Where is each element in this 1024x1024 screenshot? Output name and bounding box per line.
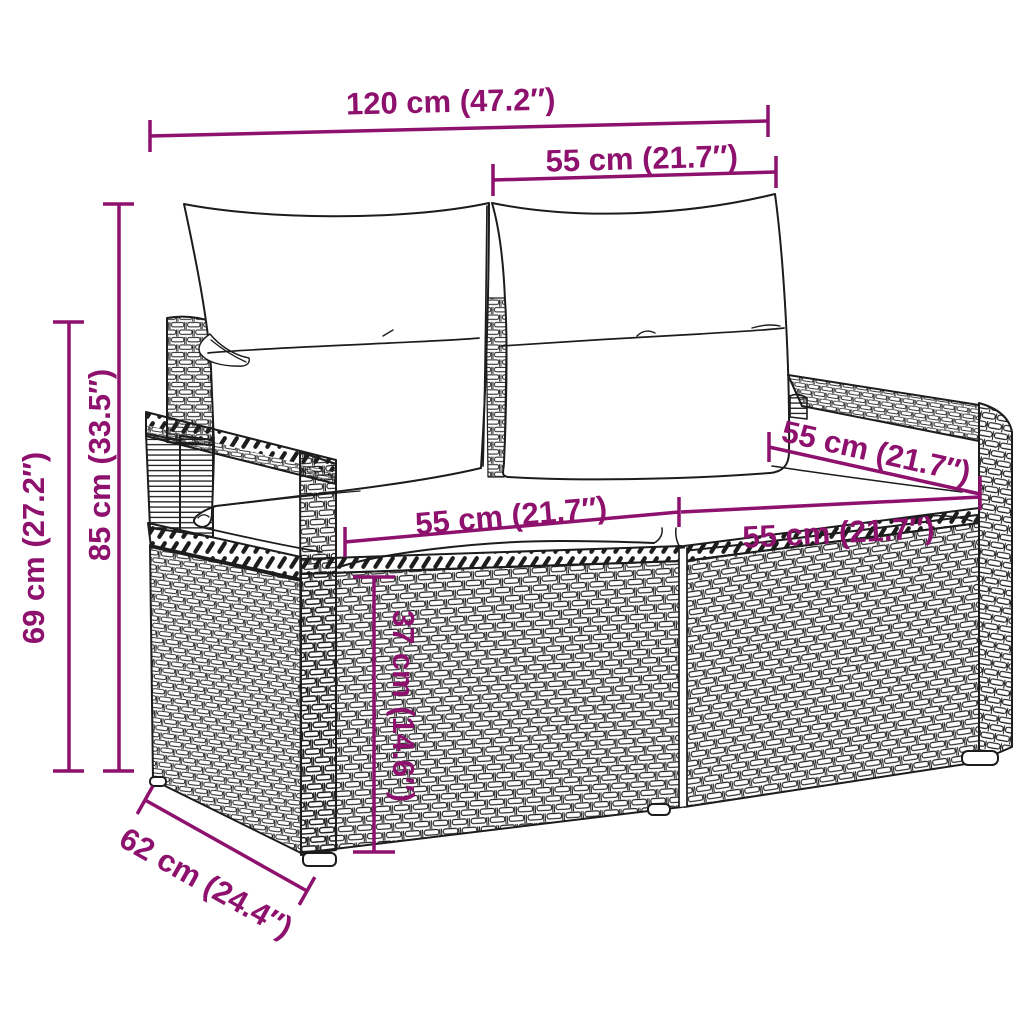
svg-text:69 cm (27.2″): 69 cm (27.2″) (16, 452, 51, 644)
svg-text:85 cm (33.5″): 85 cm (33.5″) (82, 369, 117, 561)
svg-text:55 cm (21.7″): 55 cm (21.7″) (545, 138, 738, 178)
svg-text:37 cm (14.6″): 37 cm (14.6″) (386, 610, 421, 802)
svg-text:120 cm (47.2″): 120 cm (47.2″) (346, 81, 556, 121)
